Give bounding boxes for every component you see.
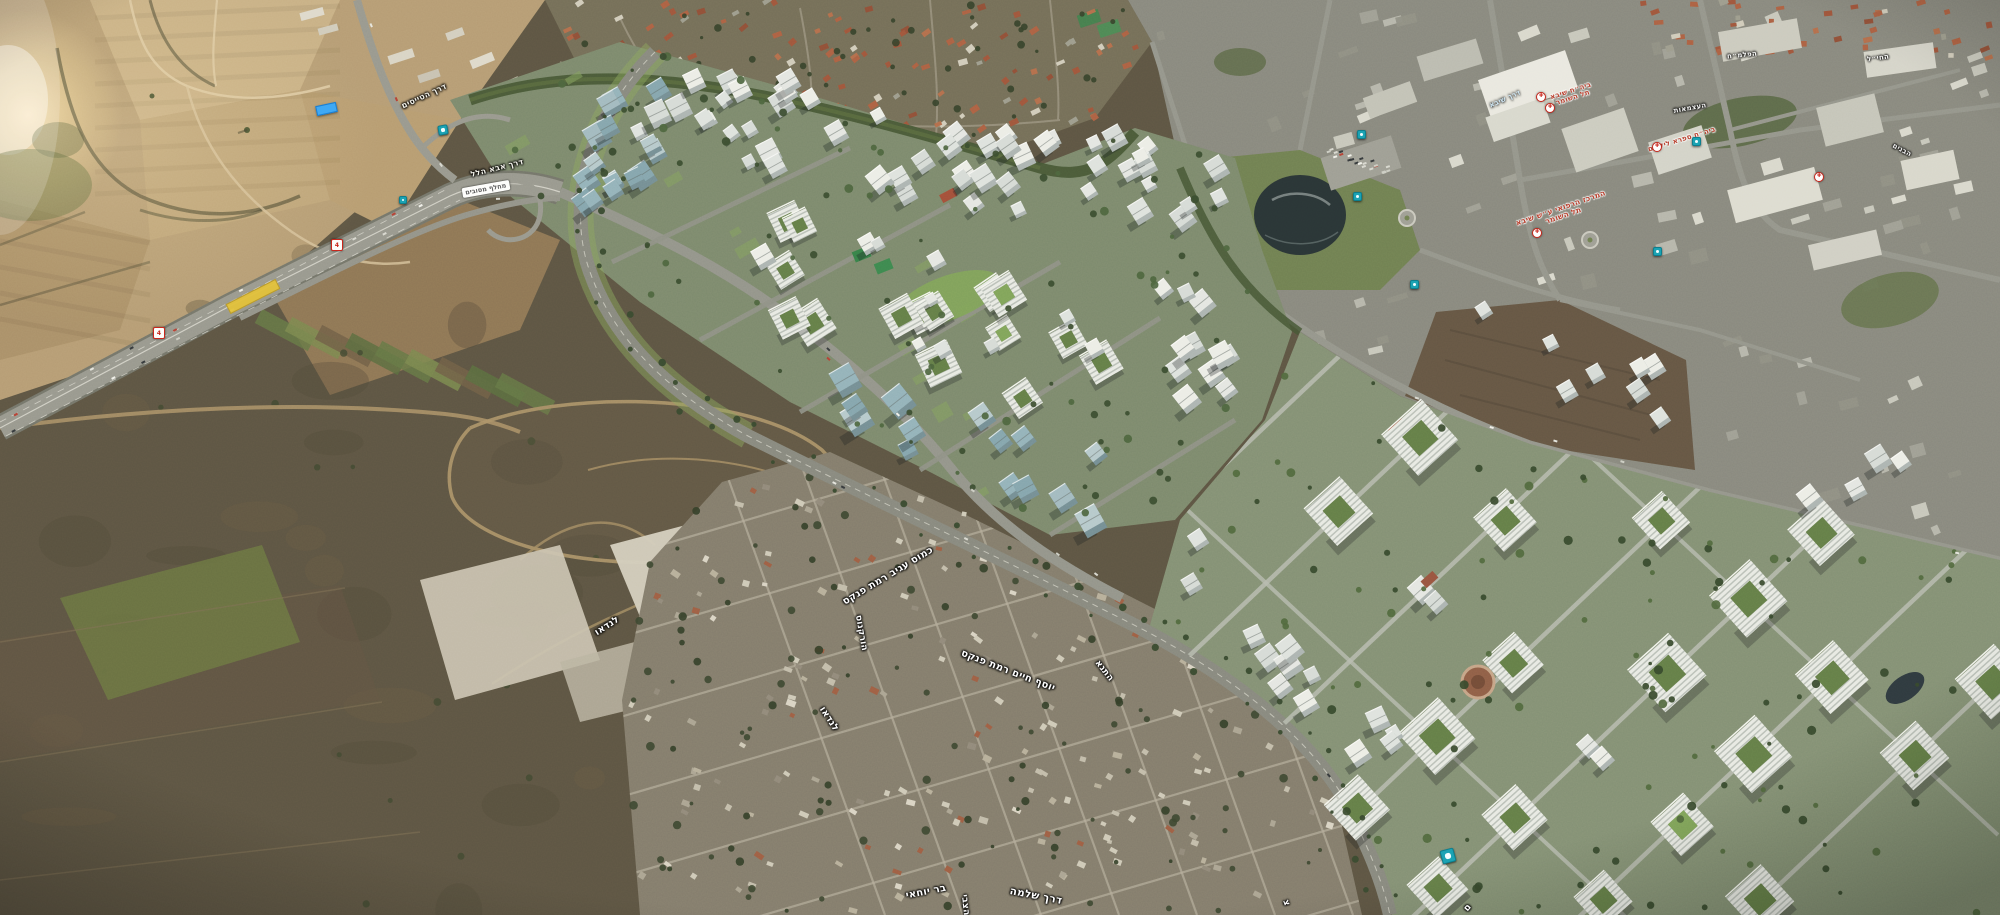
hospital-icon[interactable]: ✚ xyxy=(1652,142,1662,152)
bus-station-icon[interactable] xyxy=(1353,192,1362,201)
bus-station-icon[interactable] xyxy=(437,124,449,136)
hospital-icon[interactable]: ✚ xyxy=(1536,92,1546,102)
hospital-cross-glyph: ✚ xyxy=(1817,174,1822,180)
bus-station-icon[interactable] xyxy=(1410,280,1419,289)
hospital-icon[interactable]: ✚ xyxy=(1814,172,1824,182)
bus-station-icon[interactable] xyxy=(1357,130,1366,139)
hospital-cross-glyph: ✚ xyxy=(1535,230,1540,236)
bus-station-icon[interactable] xyxy=(399,196,407,204)
route-4-shield: 4 xyxy=(153,327,165,339)
hospital-icon[interactable]: ✚ xyxy=(1532,228,1542,238)
bus-station-icon[interactable] xyxy=(1692,137,1701,146)
hospital-cross-glyph: ✚ xyxy=(1539,94,1544,100)
hospital-icon[interactable]: ✚ xyxy=(1545,103,1555,113)
route-4-shield: 4 xyxy=(331,239,343,251)
bus-station-icon[interactable] xyxy=(1653,247,1662,256)
hospital-cross-glyph: ✚ xyxy=(1655,144,1660,150)
map-viewport[interactable]: כמוס עגיב רמת פנקס יוסף חיים רמת פנקס לנ… xyxy=(0,0,2000,915)
hospital-cross-glyph: ✚ xyxy=(1548,105,1553,111)
